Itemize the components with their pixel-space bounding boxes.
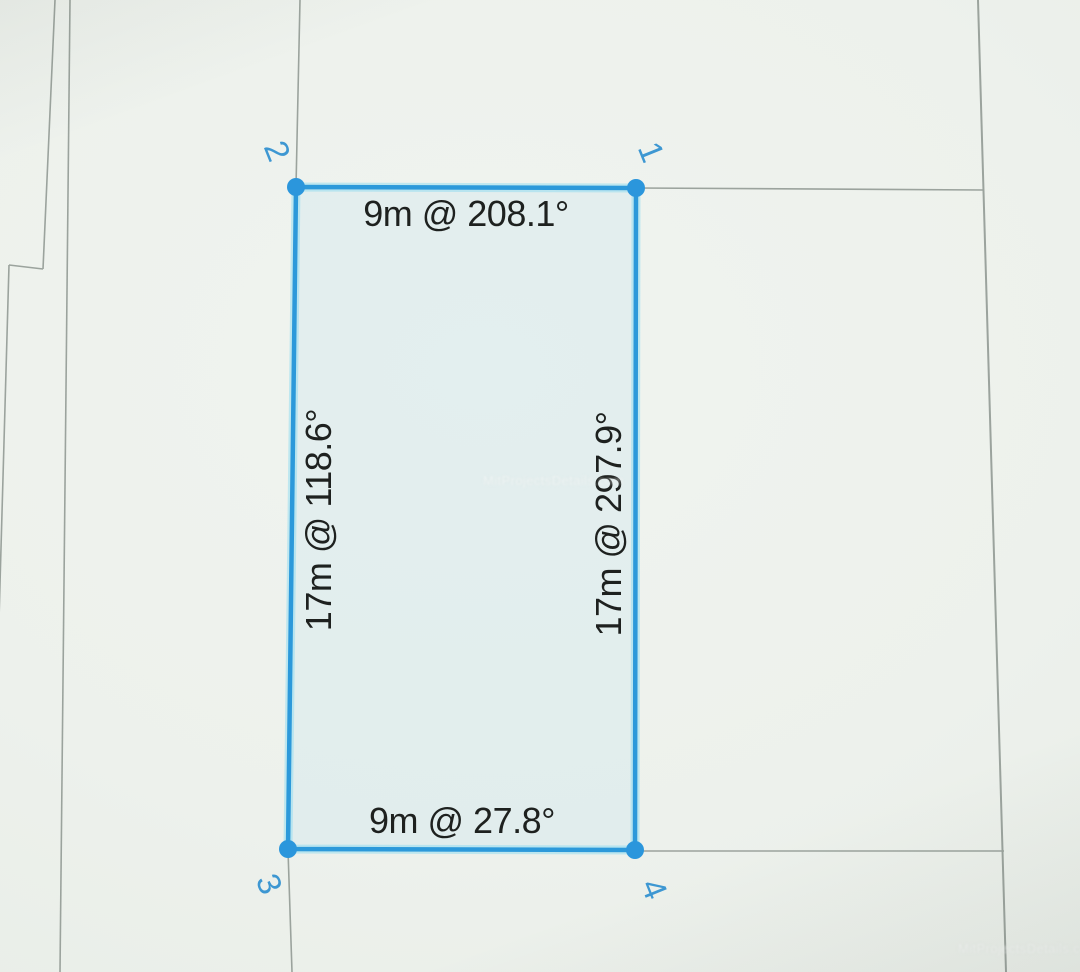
parcel-boundary-line [0, 265, 9, 690]
vertex-handle-2[interactable] [287, 178, 305, 196]
parcel-boundary-line [43, 0, 55, 269]
parcel-boundary-line [636, 188, 983, 190]
edge-label-top: 9m @ 208.1° [363, 193, 569, 235]
vertex-handle-4[interactable] [626, 841, 644, 859]
edge-label-right: 17m @ 297.9° [588, 411, 630, 636]
parcel-boundary-line [60, 0, 70, 972]
watermark-bottom-right: MitProjectsDetails.com [958, 941, 1080, 956]
vertex-handle-1[interactable] [627, 179, 645, 197]
parcel-boundary-line [9, 265, 43, 269]
edge-label-left: 17m @ 118.6° [298, 409, 340, 631]
edge-label-bottom: 9m @ 27.8° [369, 800, 555, 842]
map-canvas[interactable]: 9m @ 208.1° 17m @ 118.6° 17m @ 297.9° 9m… [0, 0, 1080, 972]
vertex-handle-3[interactable] [279, 840, 297, 858]
parcel-polygon-halo [288, 187, 636, 850]
parcel-boundary-line [288, 850, 292, 972]
watermark-center: MitProjectsDetails.com [483, 473, 624, 488]
parcel-boundary-line [978, 0, 1006, 972]
parcel-boundary-line [296, 0, 300, 187]
